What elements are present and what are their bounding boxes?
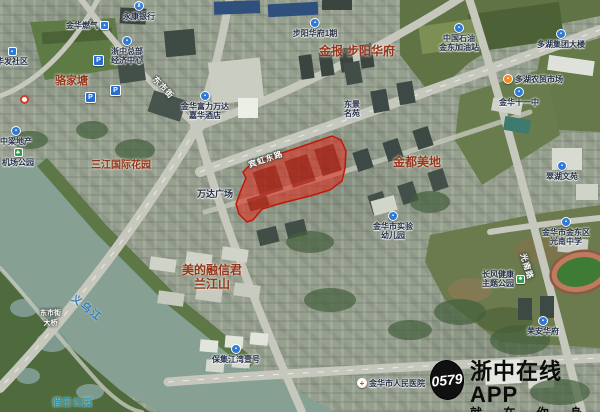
bank-icon: ¥ xyxy=(134,1,144,11)
hospital-icon: + xyxy=(357,378,367,388)
area-label-wanda-plaza: 万达广场 xyxy=(197,190,233,199)
residence-icon: ▪ xyxy=(538,316,548,326)
residence-icon: ▪ xyxy=(557,161,567,171)
area-label-jindu-meidi: 金都美地 xyxy=(393,153,441,170)
poi-jinhua-gas[interactable]: 金华燃气 ▪ xyxy=(66,21,109,30)
area-label-dongjing-line1: 东景 xyxy=(344,100,360,109)
area-label-sanjiang-international: 三江国际花园 xyxy=(91,156,151,171)
satellite-basemap xyxy=(0,0,600,412)
poi-zhezhong-hq[interactable]: ▪ 浙中总部 经济中心 xyxy=(111,36,143,65)
poi-changfeng-health-park[interactable]: 长风健康 主题公园 ♣ xyxy=(482,270,525,288)
poi-petrochina-station[interactable]: ▪ 中国石油 金东加油站 xyxy=(439,23,479,52)
poi-wanda-jiahua-hotel[interactable]: ▪ 金华富力万达 嘉华酒店 xyxy=(181,91,229,120)
poi-huafa-community[interactable]: ▪ 华发社区 xyxy=(0,47,28,66)
park-label-holiday-park: 假日公园 xyxy=(52,394,92,409)
red-ring-icon xyxy=(20,95,29,104)
parking-icon[interactable]: P xyxy=(85,92,96,103)
parking-icon[interactable]: P xyxy=(110,85,121,96)
poi-experimental-kindergarten[interactable]: ▪ 金华市实验 幼儿园 xyxy=(373,211,413,240)
market-icon: ▪ xyxy=(503,74,513,84)
satellite-map: 东市街 宾虹东路 光南路 义乌江 假日公园 东市街 大桥 金报·步阳华府 金都美… xyxy=(0,0,600,412)
school-icon: ▪ xyxy=(514,87,524,97)
school-icon: ▪ xyxy=(561,217,571,227)
poi-duohu-market[interactable]: ▪ 多湖农贸市场 xyxy=(503,74,563,84)
bridge-label-line1: 东市街 xyxy=(40,308,61,318)
poi-zhongliang-property[interactable]: ▪ 中梁地产 xyxy=(0,126,32,146)
watermark-title: 浙中在线APP xyxy=(470,360,600,406)
poi-jinhua-no11-middle-school[interactable]: ▪ 金华十一中 xyxy=(499,87,539,107)
community-icon: ▪ xyxy=(8,47,17,56)
area-label-meidi-line2: 兰江山 xyxy=(182,277,242,291)
poi-buyang-huafu-phase1[interactable]: ▪ 步阳华府1期 xyxy=(293,18,337,38)
area-label-luojiatang: 骆家塘 xyxy=(55,72,88,88)
kindergarten-icon: ▪ xyxy=(388,211,398,221)
poi-rongan-huafu[interactable]: ▪ 荣安华府 xyxy=(527,316,559,336)
company-icon: ▪ xyxy=(11,126,21,136)
office-building-icon: ▪ xyxy=(122,36,132,46)
park-icon: ♣ xyxy=(14,148,23,157)
app-watermark: 0579 浙中在线APP 就 在 你 身 边 xyxy=(430,360,600,412)
gas-company-icon: ▪ xyxy=(100,21,109,30)
poi-jinhua-peoples-hospital[interactable]: + 金华市人民医院 xyxy=(357,378,425,388)
poi-baoji-jiangwan[interactable]: ▪ 保集江湾壹号 xyxy=(212,344,260,364)
poi-duohu-group-building[interactable]: ▪ 多湖集团大楼 xyxy=(537,29,585,49)
poi-yongkang-bank[interactable]: ¥ 永康银行 xyxy=(123,1,155,21)
app-logo-0579: 0579 xyxy=(428,358,466,401)
poi-cuihu-wenyuan[interactable]: ▪ 翠湖文苑 xyxy=(546,161,578,181)
junction xyxy=(190,120,204,134)
area-label-dongjing-line2: 名苑 xyxy=(344,109,360,118)
watermark-subtitle: 就 在 你 身 边 xyxy=(470,406,600,412)
gas-station-icon: ▪ xyxy=(454,23,464,33)
parking-icon[interactable]: P xyxy=(93,55,104,66)
poi-guangnan-middle-school[interactable]: ▪ 金华市金东区 光南中学 xyxy=(542,217,590,246)
poi-airport-park[interactable]: ♣ 机场公园 xyxy=(2,148,34,167)
residence-icon: ▪ xyxy=(310,18,320,28)
park-icon: ♣ xyxy=(516,275,525,284)
area-label-meidi-line1: 美的融信君 xyxy=(182,263,242,277)
residence-icon: ▪ xyxy=(231,344,241,354)
bridge-label-line2: 大桥 xyxy=(40,318,61,328)
company-building-icon: ▪ xyxy=(556,29,566,39)
hotel-icon: ▪ xyxy=(200,91,210,101)
area-label-jinbao-buyang: 金报·步阳华府 xyxy=(319,42,395,59)
